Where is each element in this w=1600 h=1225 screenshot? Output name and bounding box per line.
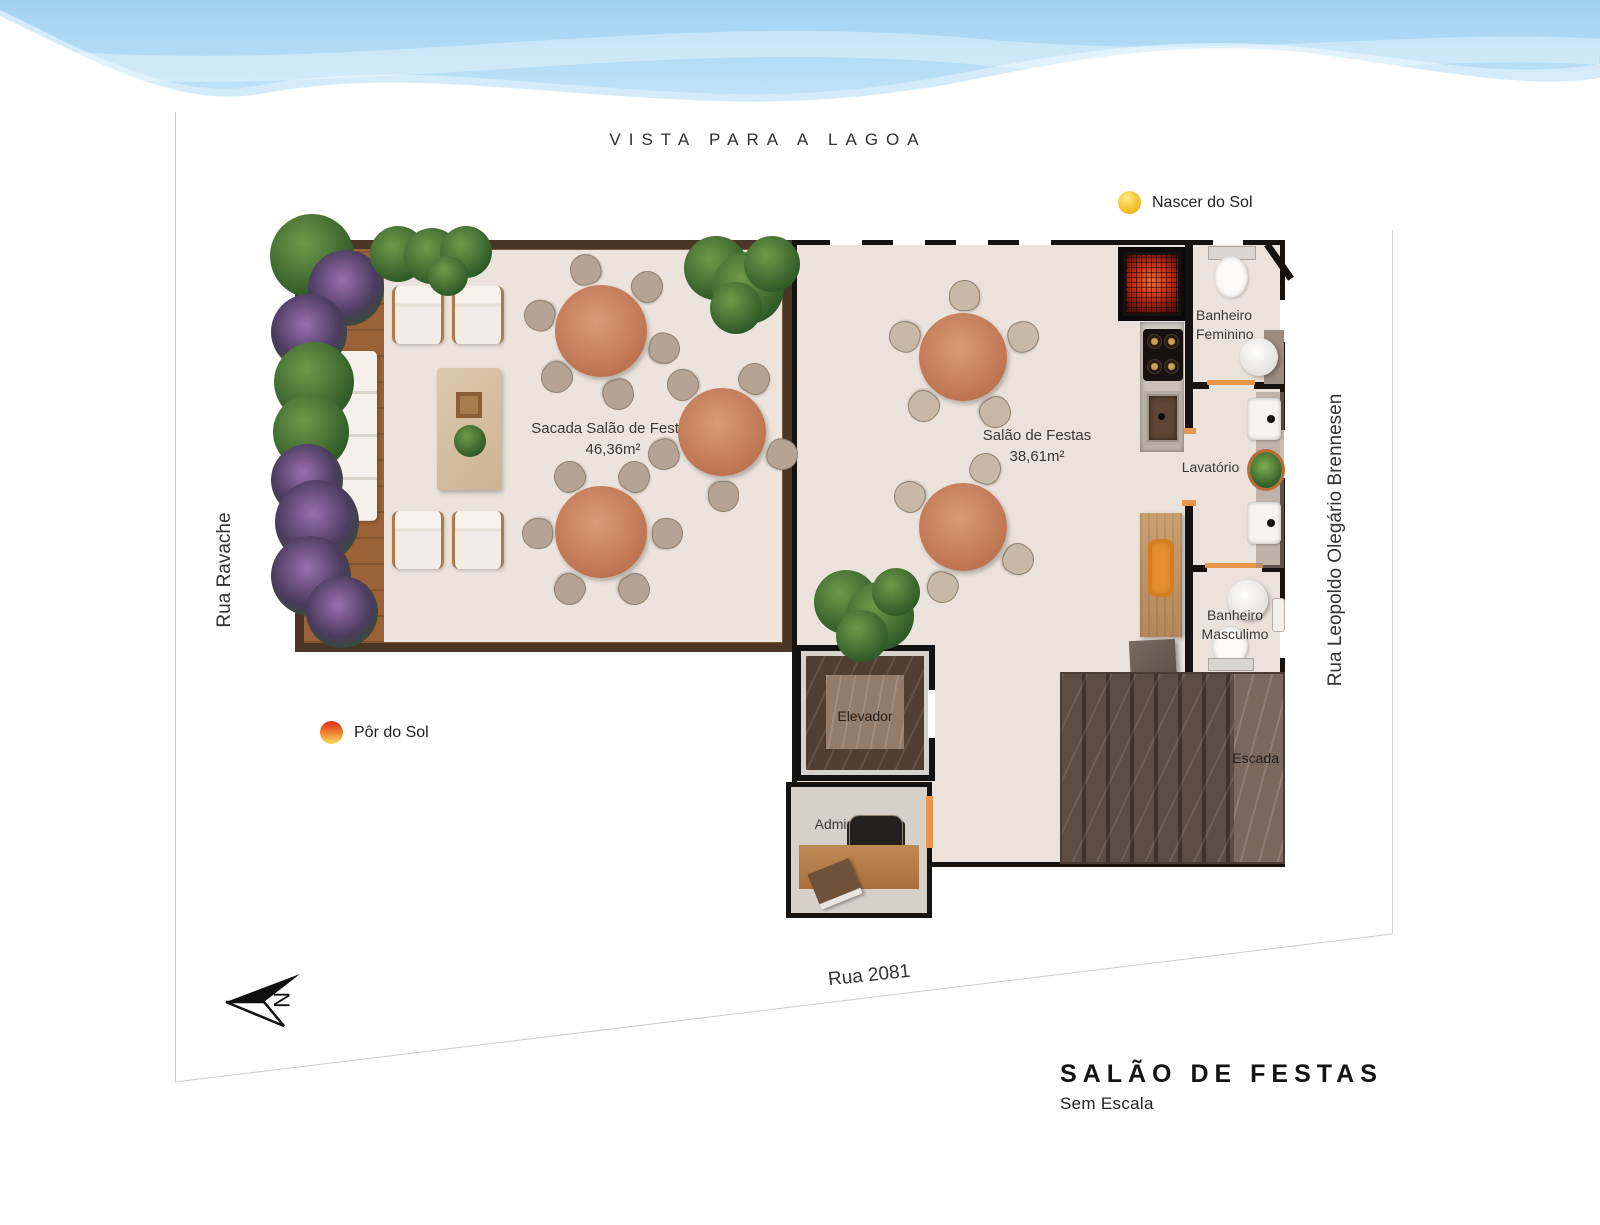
- north-letter: N: [269, 992, 294, 1008]
- staircase: Escada: [1060, 672, 1285, 864]
- toilet-tank: [1208, 658, 1254, 671]
- elevator: Elevador: [795, 645, 935, 781]
- lagoon-water-band: [0, 0, 1600, 140]
- window: [1213, 238, 1243, 245]
- window: [830, 238, 862, 245]
- door: [1207, 380, 1255, 385]
- sunset-sun-icon: [320, 721, 343, 744]
- barbecue-grill: [1118, 247, 1186, 321]
- door: [1182, 500, 1196, 506]
- window: [893, 238, 925, 245]
- stair-treads: [1062, 674, 1234, 862]
- dining-table: [678, 388, 766, 476]
- dining-table: [919, 483, 1007, 571]
- toilet: [1214, 256, 1248, 298]
- window: [956, 238, 988, 245]
- wash-basin: [1247, 398, 1281, 440]
- sunset-label: Pôr do Sol: [354, 724, 429, 742]
- lounge-chair: [452, 286, 504, 344]
- cooktop: [1143, 329, 1183, 381]
- elevator-door: [928, 690, 935, 738]
- dining-chair: [708, 481, 739, 512]
- dining-chair: [522, 518, 553, 549]
- male-bathroom-label: Banheiro Masculimo: [1190, 606, 1280, 644]
- wall: [1185, 505, 1193, 672]
- wall: [1185, 240, 1193, 432]
- plant: [872, 568, 920, 616]
- female-bathroom-l1: Banheiro: [1196, 307, 1252, 323]
- street-label-bottom: Rua 2081: [827, 961, 911, 991]
- dining-table: [555, 285, 647, 377]
- lagoon-view-label: VISTA PARA A LAGOA: [609, 130, 926, 150]
- window: [1019, 238, 1051, 245]
- plant: [454, 425, 486, 457]
- sink-drain: [1158, 413, 1165, 420]
- administration-room: Administração: [786, 782, 932, 918]
- party-hall-name: Salão de Festas: [983, 427, 1091, 444]
- title-block: SALÃO DE FESTAS Sem Escala: [1060, 1060, 1383, 1114]
- drawing-title: SALÃO DE FESTAS: [1060, 1060, 1383, 1089]
- drawing-scale: Sem Escala: [1060, 1094, 1383, 1114]
- lavatory-label: Lavatório: [1168, 458, 1253, 477]
- dining-table: [555, 486, 647, 578]
- elevator-label: Elevador: [795, 707, 935, 726]
- street-label-right: Rua Leopoldo Olegário Brennesen: [1325, 394, 1347, 687]
- party-hall-area: 38,61m²: [1009, 448, 1064, 465]
- door: [1205, 563, 1263, 568]
- sunrise-label: Nascer do Sol: [1152, 194, 1253, 212]
- plant: [836, 610, 888, 662]
- female-bathroom-l2: Feminino: [1196, 326, 1254, 342]
- male-bathroom-l1: Banheiro: [1207, 607, 1263, 623]
- lounge-chair: [392, 286, 444, 344]
- door: [1182, 428, 1196, 434]
- sunset-legend: Pôr do Sol: [320, 721, 429, 744]
- burner: [1147, 359, 1162, 374]
- dining-chair: [652, 518, 683, 549]
- kitchen-sink: [1144, 391, 1182, 445]
- tray: [1148, 539, 1174, 597]
- grill-fire: [1126, 255, 1178, 313]
- balcony-area: 46,36m²: [585, 441, 640, 458]
- party-hall-label: Salão de Festas 38,61m²: [937, 425, 1137, 467]
- wash-basin: [1247, 502, 1281, 544]
- lounge-chair: [452, 511, 504, 569]
- plant: [710, 282, 762, 334]
- stairs-label: Escada: [1232, 750, 1279, 766]
- burner: [1147, 334, 1162, 349]
- female-bathroom-label: Banheiro Feminino: [1196, 306, 1254, 344]
- door: [926, 796, 933, 848]
- male-bathroom-l2: Masculimo: [1202, 626, 1269, 642]
- stair-landing: [1234, 674, 1283, 862]
- lounge-chair: [392, 511, 444, 569]
- plant: [428, 256, 468, 296]
- street-label-left: Rua Ravache: [214, 512, 236, 627]
- plant: [306, 576, 378, 648]
- bar-firepit: [456, 392, 482, 418]
- balcony-name: Sacada Salão de Festas: [531, 420, 694, 437]
- north-compass: N: [218, 952, 310, 1044]
- dining-table: [919, 313, 1007, 401]
- sunrise-sun-icon: [1118, 191, 1141, 214]
- burner: [1164, 359, 1179, 374]
- plant: [744, 236, 800, 292]
- sunrise-legend: Nascer do Sol: [1118, 191, 1253, 214]
- wood-cabinet: [1140, 513, 1182, 637]
- burner: [1164, 334, 1179, 349]
- plant-pot: [1250, 452, 1282, 488]
- dining-chair: [949, 280, 980, 311]
